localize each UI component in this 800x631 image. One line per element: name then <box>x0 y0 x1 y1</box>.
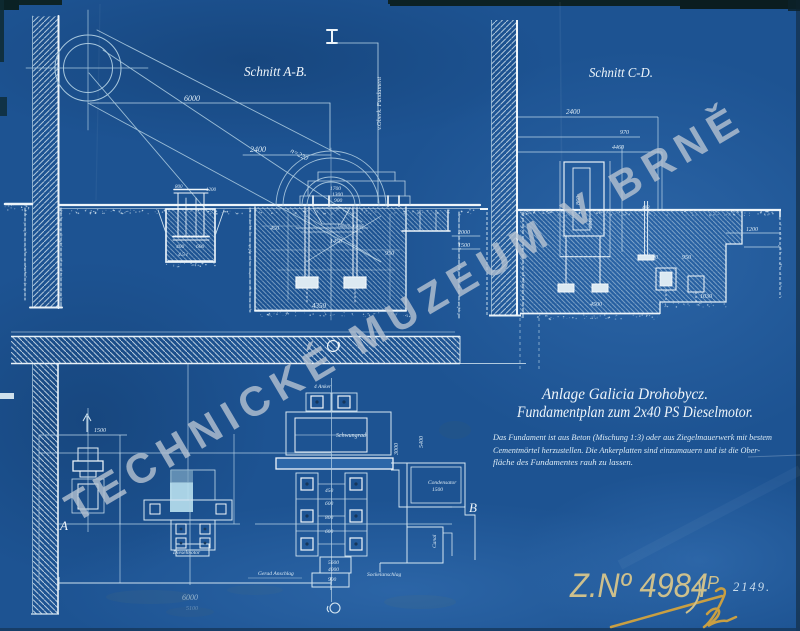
svg-text:1200: 1200 <box>746 227 758 233</box>
svg-text:Schwungrad: Schwungrad <box>336 433 367 439</box>
svg-text:3000: 3000 <box>394 443 400 456</box>
svg-text:Canal: Canal <box>432 534 438 548</box>
svg-text:6000: 6000 <box>184 94 200 103</box>
svg-text:Cementmörtel herzustellen. Die: Cementmörtel herzustellen. Die Ankerplat… <box>493 446 760 455</box>
svg-text:Dieselmotor: Dieselmotor <box>172 550 201 556</box>
svg-text:600: 600 <box>325 501 334 507</box>
svg-text:Schnitt A-B.: Schnitt A-B. <box>244 65 307 80</box>
svg-text:2000: 2000 <box>458 230 470 236</box>
svg-text:1500: 1500 <box>94 428 106 434</box>
svg-text:900: 900 <box>328 577 337 583</box>
svg-text:4000: 4000 <box>328 566 339 573</box>
svg-text:450: 450 <box>325 487 334 494</box>
svg-text:Fundamentplan zum 2x40 PS Dies: Fundamentplan zum 2x40 PS Dieselmotor. <box>516 404 753 421</box>
svg-text:900: 900 <box>334 198 343 204</box>
svg-text:600: 600 <box>196 244 205 250</box>
svg-text:A: A <box>59 518 68 533</box>
svg-text:2149.: 2149. <box>733 580 771 594</box>
svg-text:v.Oberk. Fundament: v.Oberk. Fundament <box>376 77 383 130</box>
svg-text:2400: 2400 <box>250 145 266 154</box>
svg-text:Z.Nº 4984: Z.Nº 4984 <box>569 567 708 605</box>
svg-text:B: B <box>469 500 477 515</box>
svg-text:4460: 4460 <box>612 144 624 151</box>
svg-text:4.5 t: 4.5 t <box>178 251 188 258</box>
svg-text:Das Fundament ist aus Beton (M: Das Fundament ist aus Beton (Mischung 1:… <box>492 433 772 442</box>
svg-text:488: 488 <box>642 206 650 211</box>
svg-text:4500: 4500 <box>590 301 602 308</box>
svg-text:Condensator: Condensator <box>428 480 457 486</box>
svg-text:950: 950 <box>682 255 691 261</box>
svg-text:450: 450 <box>270 225 279 232</box>
svg-text:1500: 1500 <box>432 487 443 493</box>
svg-text:5600: 5600 <box>328 560 339 566</box>
svg-text:5400: 5400 <box>418 436 425 448</box>
svg-text:Gerad Anschlag: Gerad Anschlag <box>258 571 294 577</box>
svg-text:Oberk. Fund.: Oberk. Fund. <box>338 224 365 229</box>
svg-text:400: 400 <box>176 243 185 250</box>
svg-text:600: 600 <box>325 529 334 535</box>
svg-text:Anlage Galicia Drohobycz.: Anlage Galicia Drohobycz. <box>541 386 708 403</box>
svg-text:800: 800 <box>175 185 183 190</box>
svg-text:fläche des Fundamentes rauh zu: fläche des Fundamentes rauh zu lassen. <box>493 458 633 467</box>
svg-text:4350: 4350 <box>312 302 327 310</box>
svg-text:1030: 1030 <box>700 294 712 300</box>
svg-text:1200: 1200 <box>206 188 217 193</box>
svg-text:950: 950 <box>385 251 394 257</box>
svg-text:970: 970 <box>620 130 629 136</box>
svg-text:Schnitt C-D.: Schnitt C-D. <box>589 66 653 81</box>
svg-text:2500: 2500 <box>646 255 658 261</box>
svg-text:Sockelanschlag: Sockelanschlag <box>367 572 401 578</box>
svg-text:2400: 2400 <box>566 108 581 116</box>
svg-text:1450: 1450 <box>330 238 342 245</box>
